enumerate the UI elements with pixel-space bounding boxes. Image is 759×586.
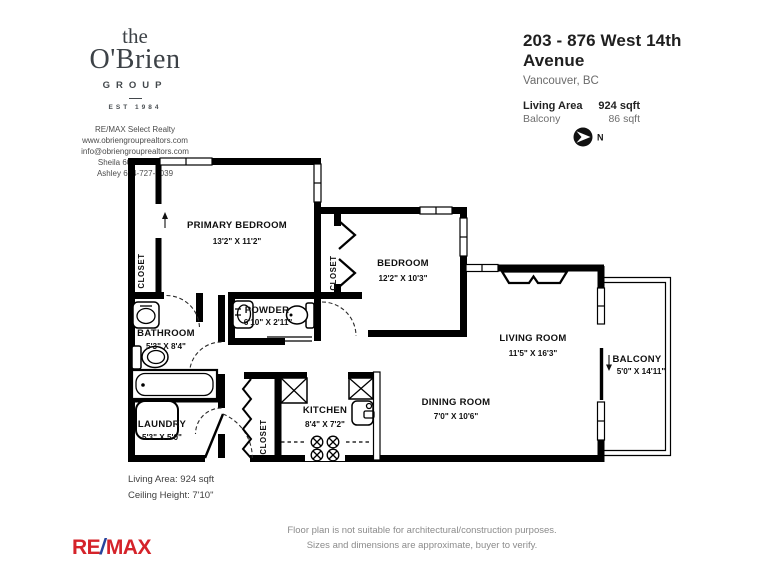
room-label: POWDER — [245, 305, 290, 316]
north-label: N — [597, 133, 604, 143]
door-arc — [167, 296, 200, 329]
bifold-door — [243, 379, 251, 458]
room-dims: 13'2" X 11'2" — [213, 237, 262, 246]
room-label: PRIMARY BEDROOM — [187, 220, 287, 231]
room-dims: 6'10" X 2'11" — [244, 318, 293, 327]
room-dims: 12'2" X 10'3" — [379, 274, 428, 283]
fireplace-icon — [502, 272, 567, 284]
floorplan-svg: N — [0, 0, 759, 586]
room-label: LIVING ROOM — [499, 333, 566, 344]
windows — [160, 158, 605, 460]
sliding-door-panel — [600, 348, 603, 400]
remax-re: RE — [72, 536, 100, 559]
living-area-note: Living Area: 924 sqft — [128, 472, 214, 488]
bifold-door — [339, 259, 355, 287]
disclaimer-line1: Floor plan is not suitable for architect… — [240, 523, 604, 538]
toilet-icon — [132, 346, 141, 369]
balcony-door-arrow-icon — [606, 355, 612, 371]
room-dims: 11'5" X 16'3" — [509, 349, 558, 358]
room-label: LAUNDRY — [138, 419, 187, 430]
compass-icon: N — [574, 128, 604, 147]
bifold-door — [339, 221, 355, 249]
room-label: KITCHEN — [303, 405, 347, 416]
room-label: DINING ROOM — [422, 397, 491, 408]
floorplan-page: the O'Brien GROUP EST 1984 RE/MAX Select… — [0, 0, 759, 586]
bathtub-icon — [132, 370, 217, 399]
room-dims: 5'0" X 14'11" — [617, 367, 666, 376]
closet-arrow-icon — [162, 212, 168, 228]
door-arc — [322, 302, 356, 336]
closet-label: CLOSET — [329, 255, 338, 290]
closet-label: CLOSET — [137, 253, 146, 288]
disclaimer: Floor plan is not suitable for architect… — [240, 523, 604, 553]
kitchen-sink-icon — [352, 401, 373, 425]
remax-max: MAX — [106, 536, 151, 559]
room-label: BATHROOM — [137, 328, 195, 339]
room-dims: 5'3" X 8'4" — [146, 342, 186, 351]
closet-label: CLOSET — [259, 419, 268, 454]
room-label: BALCONY — [612, 354, 661, 365]
room-label: BEDROOM — [377, 258, 429, 269]
open-door-leaf — [196, 293, 203, 322]
room-dims: 8'4" X 7'2" — [305, 420, 345, 429]
ceiling-height-note: Ceiling Height: 7'10" — [128, 488, 214, 504]
room-labels: PRIMARY BEDROOM 13'2" X 11'2" BEDROOM 12… — [137, 220, 665, 455]
room-dims: 7'0" X 10'6" — [434, 412, 479, 421]
disclaimer-line2: Sizes and dimensions are approximate, bu… — [240, 538, 604, 553]
remax-logo: RE/MAX — [72, 534, 151, 560]
plan-info: Living Area: 924 sqft Ceiling Height: 7'… — [128, 472, 214, 503]
room-dims: 5'3" X 5'0" — [142, 433, 182, 442]
